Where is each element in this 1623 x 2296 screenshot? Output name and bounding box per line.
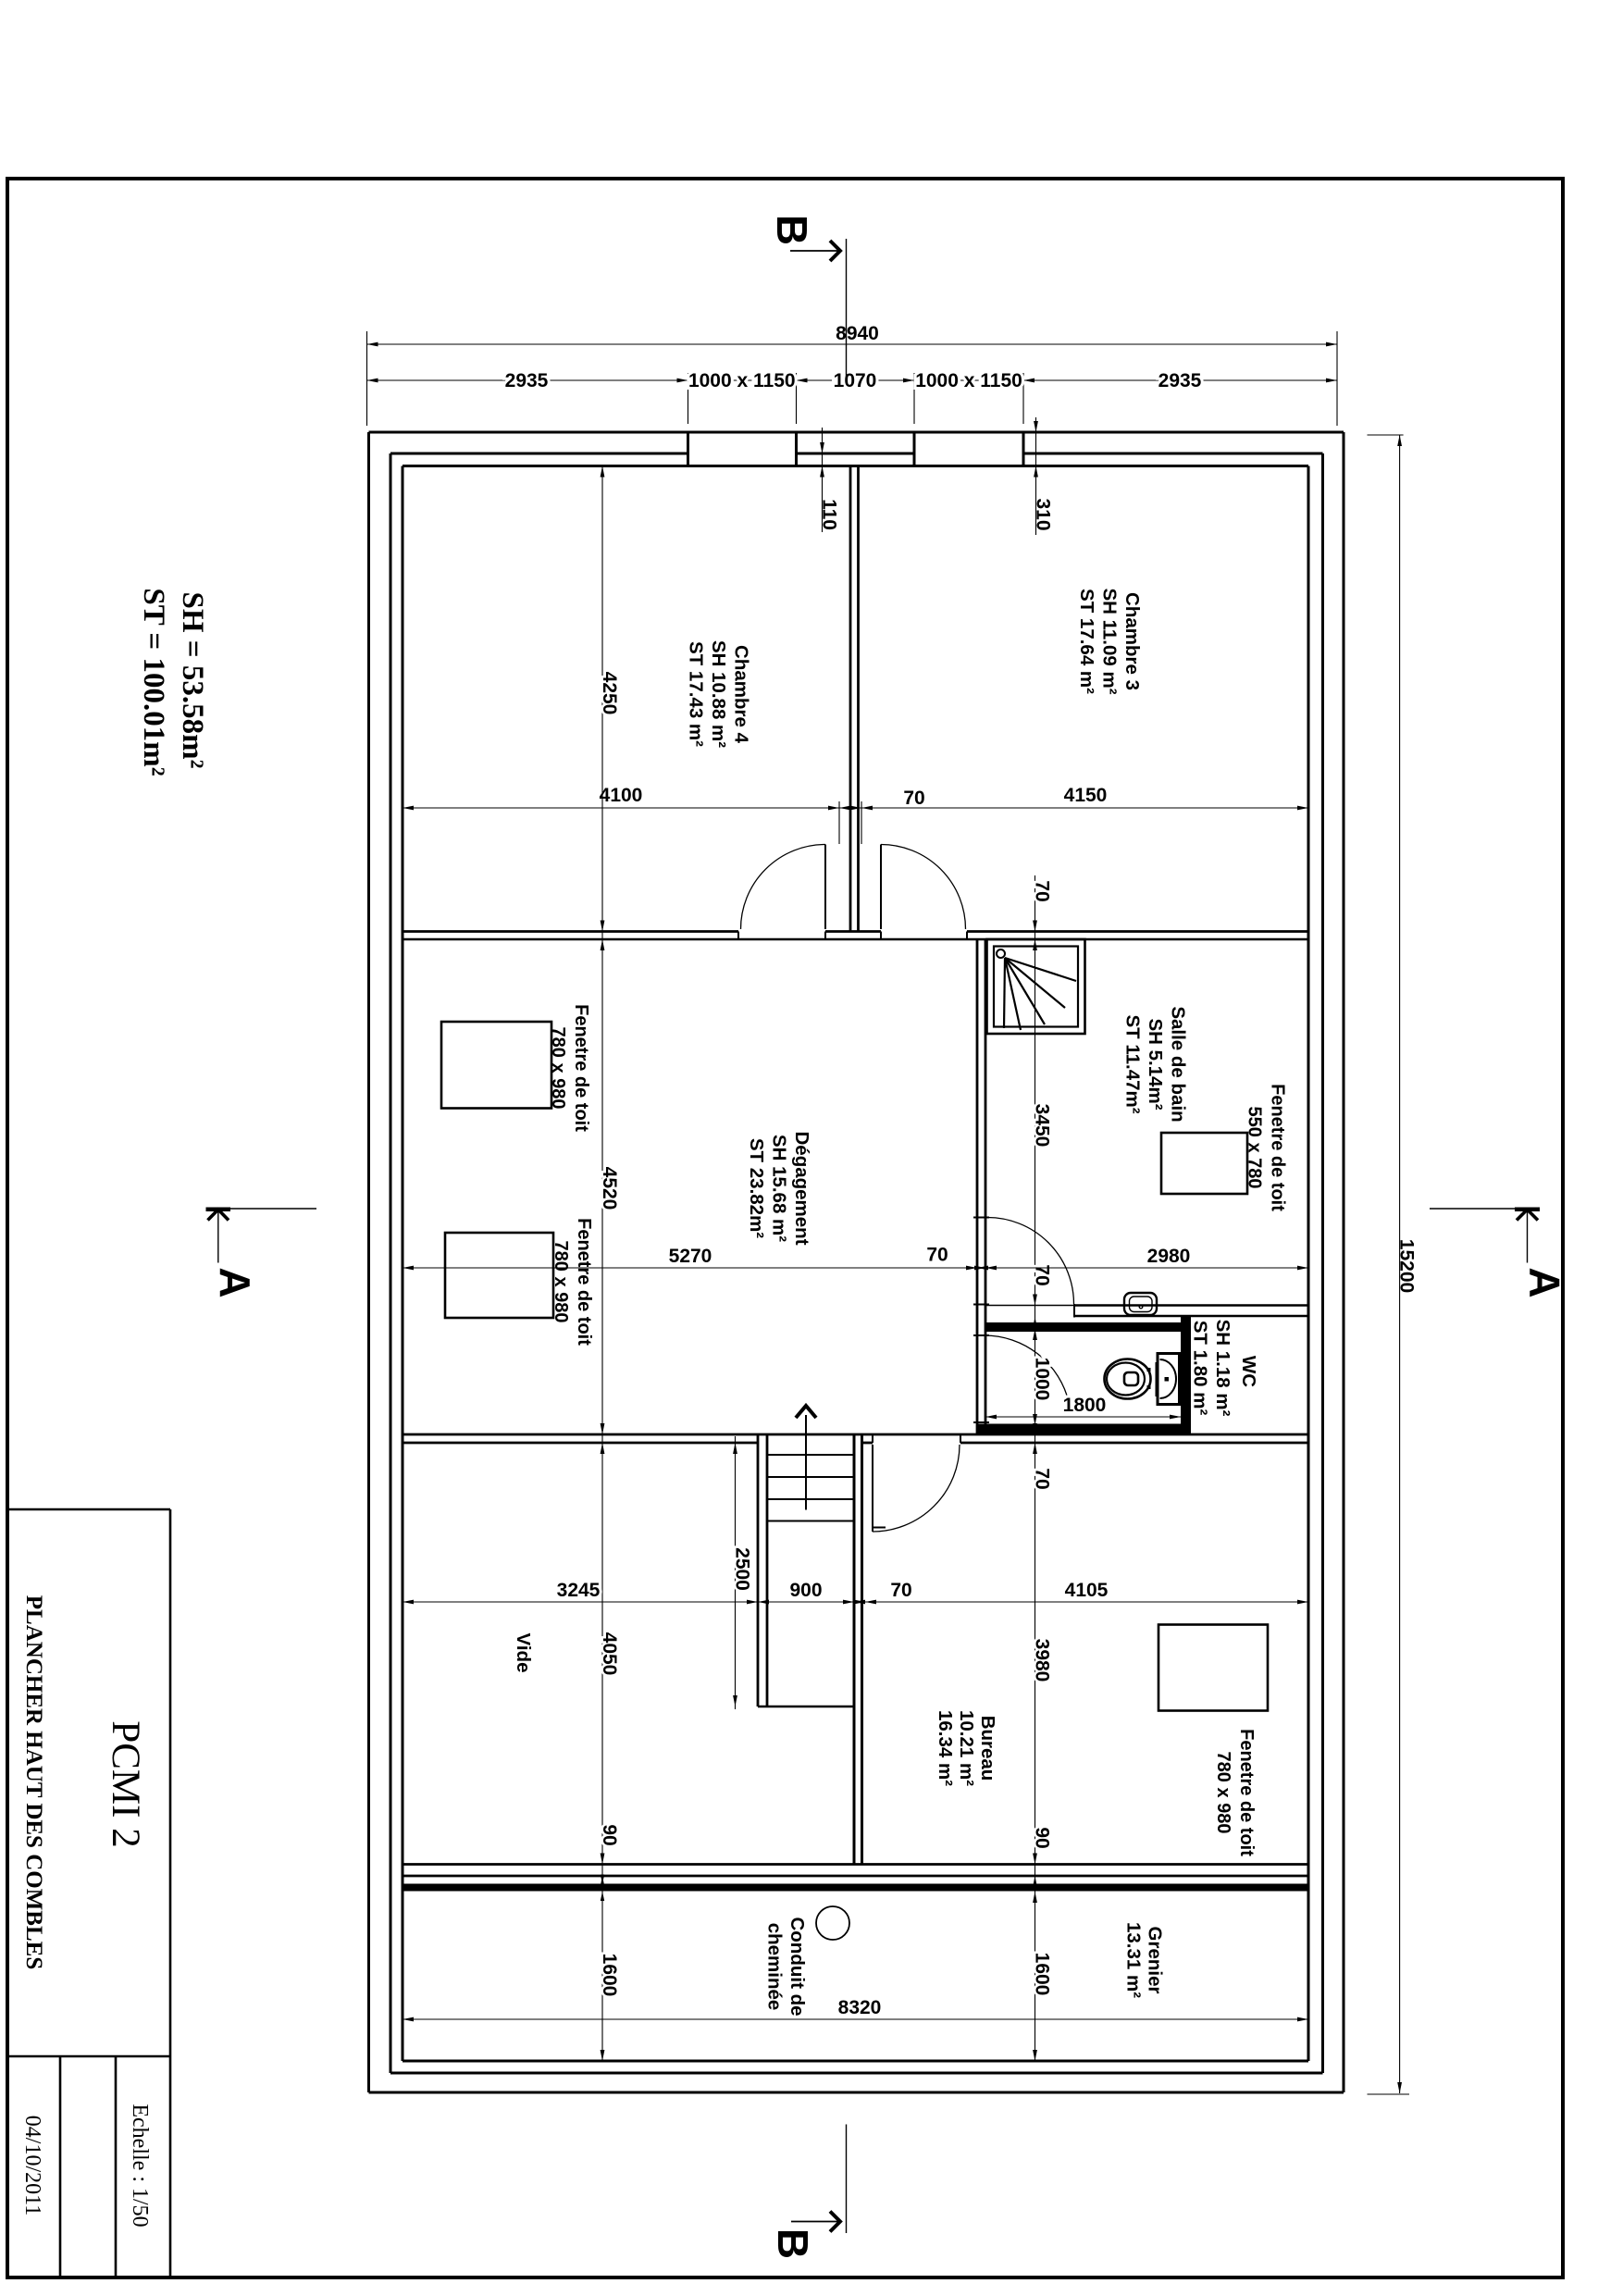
svg-text:3245: 3245 <box>557 1580 601 1601</box>
svg-text:4250: 4250 <box>599 672 620 715</box>
svg-text:ST 1.80 m²: ST 1.80 m² <box>1190 1321 1211 1416</box>
svg-text:ST 17.64 m²: ST 17.64 m² <box>1076 589 1097 694</box>
svg-text:70: 70 <box>903 788 924 809</box>
svg-text:SH 1.18 m²: SH 1.18 m² <box>1212 1320 1233 1417</box>
svg-text:ST 17.43 m²: ST 17.43 m² <box>686 641 707 747</box>
svg-text:4100: 4100 <box>600 785 643 806</box>
svg-text:780 x 980: 780 x 980 <box>548 1027 568 1110</box>
svg-text:4105: 4105 <box>1065 1580 1109 1601</box>
svg-text:B: B <box>768 215 816 245</box>
svg-text:ST 23.82m²: ST 23.82m² <box>746 1138 767 1238</box>
svg-text:SH 11.09 m²: SH 11.09 m² <box>1099 588 1121 694</box>
svg-text:1600: 1600 <box>599 1954 620 1997</box>
svg-text:780 x 980: 780 x 980 <box>1213 1752 1233 1834</box>
svg-text:90: 90 <box>1032 1827 1053 1848</box>
svg-text:16.34 m²: 16.34 m² <box>935 1710 956 1786</box>
svg-text:1800: 1800 <box>1063 1395 1107 1416</box>
svg-text:Dégagement: Dégagement <box>791 1131 812 1245</box>
svg-text:110: 110 <box>819 499 840 530</box>
svg-text:1000: 1000 <box>1032 1358 1053 1401</box>
svg-text:3980: 3980 <box>1032 1639 1053 1682</box>
svg-text:Chambre 4: Chambre 4 <box>731 645 752 744</box>
svg-text:1070: 1070 <box>834 370 877 391</box>
svg-text:Fenetre de toit: Fenetre de toit <box>574 1218 594 1346</box>
svg-text:PLANCHER HAUT DES COMBLES: PLANCHER HAUT DES COMBLES <box>21 1595 46 1969</box>
svg-text:Grenier: Grenier <box>1145 1927 1166 1994</box>
svg-text:ST 11.47m²: ST 11.47m² <box>1122 1014 1144 1113</box>
svg-text:4520: 4520 <box>599 1167 620 1210</box>
svg-text:SH = 53.58m²: SH = 53.58m² <box>176 592 209 769</box>
svg-text:8940: 8940 <box>836 323 879 344</box>
svg-text:PCMI 2: PCMI 2 <box>104 1720 147 1847</box>
svg-text:B: B <box>769 2228 817 2259</box>
svg-text:70: 70 <box>1032 880 1053 901</box>
svg-text:4150: 4150 <box>1064 785 1108 806</box>
svg-text:cheminée: cheminée <box>764 1923 786 2011</box>
svg-text:70: 70 <box>1032 1468 1053 1489</box>
svg-text:Bureau: Bureau <box>977 1716 998 1781</box>
svg-text:2500: 2500 <box>732 1547 753 1591</box>
svg-text:ST = 100.01m²: ST = 100.01m² <box>137 588 170 776</box>
svg-text:550 x 780: 550 x 780 <box>1245 1107 1265 1189</box>
svg-text:1000 x 1150: 1000 x 1150 <box>915 370 1022 391</box>
svg-text:Conduit de: Conduit de <box>787 1917 808 2016</box>
svg-text:Echelle : 1/50: Echelle : 1/50 <box>128 2104 152 2227</box>
svg-text:2935: 2935 <box>1158 370 1202 391</box>
svg-text:70: 70 <box>926 1245 948 1266</box>
svg-text:3450: 3450 <box>1032 1104 1053 1148</box>
svg-text:4050: 4050 <box>599 1632 620 1676</box>
svg-text:13.31 m²: 13.31 m² <box>1123 1922 1145 1998</box>
svg-text:A: A <box>211 1267 259 1297</box>
svg-text:8320: 8320 <box>838 1997 882 2018</box>
svg-text:70: 70 <box>890 1580 911 1601</box>
svg-text:Fenetre de toit: Fenetre de toit <box>571 1004 591 1132</box>
svg-text:1000 x 1150: 1000 x 1150 <box>688 370 796 391</box>
svg-text:Vide: Vide <box>513 1633 534 1673</box>
svg-text:SH 15.68 m²: SH 15.68 m² <box>769 1135 790 1242</box>
svg-text:2980: 2980 <box>1147 1246 1191 1267</box>
svg-text:900: 900 <box>789 1580 822 1601</box>
svg-text:1600: 1600 <box>1032 1953 1053 1996</box>
svg-text:WC: WC <box>1238 1356 1259 1387</box>
svg-text:10.21 m²: 10.21 m² <box>956 1710 977 1786</box>
svg-text:15200: 15200 <box>1396 1239 1418 1293</box>
svg-text:2935: 2935 <box>505 370 549 391</box>
svg-text:90: 90 <box>599 1824 620 1845</box>
svg-text:Salle de bain: Salle de bain <box>1168 1006 1189 1122</box>
svg-text:780 x 980: 780 x 980 <box>551 1241 571 1323</box>
svg-text:Fenetre de toit: Fenetre de toit <box>1268 1084 1288 1211</box>
svg-text:5270: 5270 <box>669 1246 712 1267</box>
svg-text:310: 310 <box>1033 498 1054 530</box>
svg-text:04/10/2011: 04/10/2011 <box>20 2116 44 2215</box>
svg-text:Fenetre de toit: Fenetre de toit <box>1236 1729 1257 1856</box>
svg-text:A: A <box>1521 1267 1569 1297</box>
svg-text:SH 5.14m²: SH 5.14m² <box>1145 1018 1166 1110</box>
svg-text:SH 10.88 m²: SH 10.88 m² <box>708 640 729 748</box>
svg-text:Chambre 3: Chambre 3 <box>1121 592 1143 690</box>
